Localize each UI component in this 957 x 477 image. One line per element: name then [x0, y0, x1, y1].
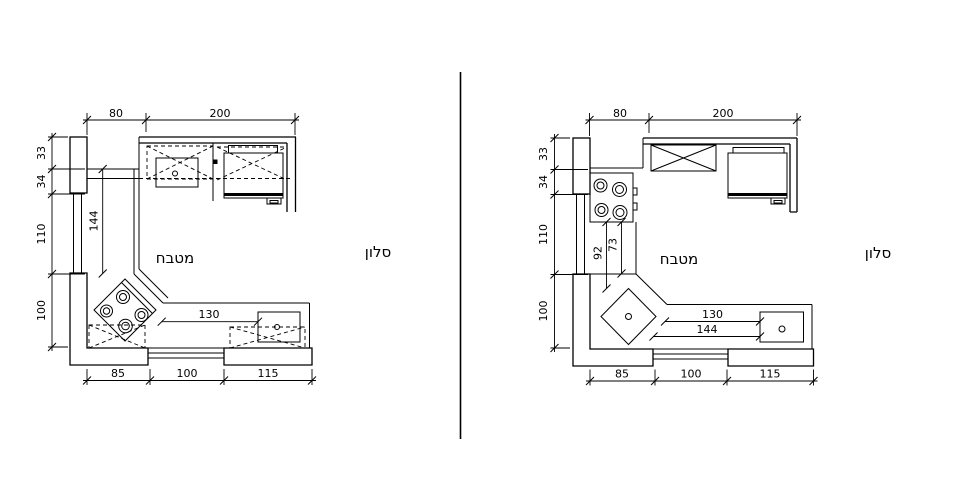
dim-label: 80 [109, 107, 123, 120]
dim-label: 85 [615, 368, 629, 381]
cabinet-joint-mark [213, 160, 218, 165]
wall-column-top-left [573, 138, 590, 194]
dim-label: 85 [111, 367, 125, 380]
window [577, 194, 585, 274]
door-sill [148, 353, 224, 358]
hob-burner-icon [616, 186, 624, 194]
dim-label: 110 [35, 224, 48, 245]
base-cabinet-left-x [89, 325, 145, 348]
fridge-handle-inner [774, 201, 782, 204]
dashed-cabinets [89, 146, 305, 348]
dimensions: 80 200 33 34 110 100 85 100 115 92 73 13… [537, 107, 818, 386]
base-cabinet-right-x [230, 327, 305, 348]
sink-bottom [760, 312, 804, 342]
corner-sink [601, 289, 656, 345]
dim-label: 200 [210, 107, 231, 120]
room-label-kitchen: מטבח [156, 249, 194, 267]
wall-bottom-left [573, 274, 653, 366]
dim-label: 130 [702, 308, 723, 321]
dim-label: 100 [681, 368, 702, 381]
counter-side-edge [134, 169, 139, 274]
drawing-canvas: 80 200 33 34 110 100 85 100 115 144 130 … [0, 0, 957, 477]
dim-label: 144 [88, 211, 101, 232]
dim-label: 130 [199, 308, 220, 321]
dim-line-left [551, 134, 589, 352]
wall-bottom-right [224, 348, 312, 365]
dim-label: 73 [607, 238, 620, 252]
window [74, 193, 82, 273]
dim-label: 200 [713, 107, 734, 120]
floor-plan-drawing: 80 200 33 34 110 100 85 100 115 144 130 … [0, 0, 957, 477]
fridge-outline [728, 153, 787, 198]
dim-label: 100 [177, 367, 198, 380]
door-sill [653, 354, 728, 359]
dim-line-left [48, 133, 85, 351]
wall-right [790, 138, 797, 212]
dim-label: 115 [760, 368, 781, 381]
corner-sink-drain-icon [626, 314, 632, 320]
fridge-top-panel [733, 148, 784, 154]
hob-burner-icon [613, 183, 627, 197]
room-label-salon: סלון [865, 244, 891, 262]
hob-burner-icon [595, 204, 608, 217]
fridge-handle-inner [270, 201, 278, 204]
fridge [728, 148, 787, 205]
upper-cabinet-x [147, 146, 213, 179]
fridge-cabinet-x [217, 147, 287, 180]
right-plan: 80 200 33 34 110 100 85 100 115 92 73 13… [537, 107, 891, 386]
wall-column-top-left [70, 137, 87, 193]
dim-label: 33 [35, 146, 48, 160]
dim-label: 92 [592, 246, 605, 260]
dim-label: 100 [35, 300, 48, 321]
hob-burner-icon [613, 206, 627, 220]
dim-label: 80 [613, 107, 627, 120]
hob [94, 279, 156, 341]
sink-top-drain-icon [173, 171, 178, 176]
fridge-base-bar [728, 193, 787, 196]
room-label-salon: סלון [365, 243, 391, 261]
fridge-outline [224, 153, 283, 198]
dim-label: 115 [258, 367, 279, 380]
hob-knob-icon [633, 203, 637, 210]
hob-knob-icon [633, 188, 637, 195]
room-label-kitchen: מטבח [660, 250, 698, 268]
hob-burner-icon [597, 182, 604, 189]
dim-label: 110 [537, 224, 550, 245]
sink-bottom-drain-icon [779, 326, 785, 332]
dim-label: 144 [697, 323, 718, 336]
counter-corner-diagonal [134, 269, 168, 303]
wall-top [643, 138, 797, 144]
hob-burner-icon [119, 319, 133, 333]
niche-step [87, 137, 139, 179]
hob-burner-icon [594, 179, 607, 192]
hob-burner-icon [135, 309, 148, 322]
hob [590, 173, 637, 222]
dim-label: 34 [537, 175, 550, 189]
dim-label: 33 [537, 147, 550, 161]
left-plan: 80 200 33 34 110 100 85 100 115 144 130 … [35, 107, 391, 385]
hob-burner-icon [101, 305, 113, 317]
hob-burner-icon [138, 312, 145, 319]
fixtures [590, 145, 804, 345]
niche-step [590, 138, 643, 168]
dimensions: 80 200 33 34 110 100 85 100 115 144 130 [35, 107, 316, 385]
hob-burner-icon [122, 322, 130, 330]
wall-bottom-right [728, 349, 814, 366]
dim-label: 34 [35, 175, 48, 189]
counter-corner-diagonal [636, 274, 667, 305]
hob-burner-icon [598, 207, 605, 214]
wall-top [139, 137, 296, 143]
hob-burner-icon [616, 209, 624, 217]
hob-burner-icon [117, 291, 130, 304]
fridge-base-bar [224, 193, 283, 196]
counter-front-edge [163, 303, 310, 348]
wall-right [287, 137, 296, 212]
fixtures [94, 146, 300, 343]
upper-cabinet-x [651, 145, 716, 171]
corner-sink-outline [601, 289, 656, 345]
dim-label: 100 [537, 301, 550, 322]
hob-burner-icon [120, 294, 127, 301]
upper-cabinet [651, 145, 716, 171]
hob-burner-icon [103, 308, 109, 314]
